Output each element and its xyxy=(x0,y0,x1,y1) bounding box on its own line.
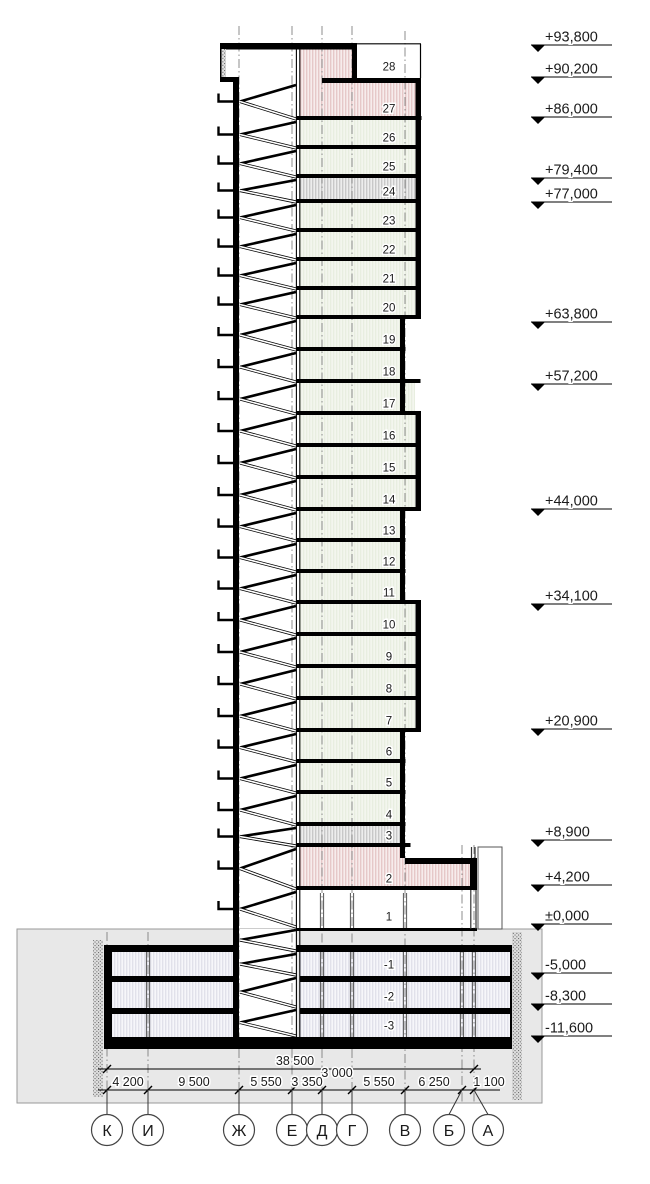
elevation-label: +93,800 xyxy=(545,30,598,46)
elevation-marker xyxy=(531,509,545,516)
balcony-bracket xyxy=(219,612,234,620)
dim-label-segment: 5 550 xyxy=(363,1075,394,1089)
section-drawing: 2827262524232221201918171615141312111098… xyxy=(0,0,650,1184)
stair-flight-upper xyxy=(240,85,296,102)
parapet-step xyxy=(220,77,239,82)
stair-flight-lower-gap xyxy=(240,367,296,382)
parapet-outer-line xyxy=(220,43,222,80)
floor-slab xyxy=(296,199,421,203)
floor-label-3: 3 xyxy=(386,831,392,843)
floor-label-16: 16 xyxy=(383,431,396,443)
floor-slab xyxy=(296,886,477,890)
floor-label-15: 15 xyxy=(383,463,396,475)
dim-label-segment: 9 500 xyxy=(178,1075,209,1089)
side-structure xyxy=(478,847,502,929)
floor-slab xyxy=(296,347,406,351)
parapet-hatch xyxy=(222,49,227,77)
stair-flight-upper xyxy=(240,449,296,463)
attic-void-fill xyxy=(300,49,352,83)
floor-label-24: 24 xyxy=(383,187,396,199)
basement-top-slab xyxy=(296,945,517,952)
floor-label-2: 2 xyxy=(386,874,392,886)
floor-slab xyxy=(296,822,406,826)
annex-right-wall xyxy=(470,858,477,890)
floor-slab xyxy=(296,696,421,700)
basement-left-wall xyxy=(104,945,112,1049)
stair-flight-lower-gap xyxy=(240,527,296,542)
axis-bubble-label: К xyxy=(102,1123,112,1140)
floor-label-11: 11 xyxy=(383,588,395,600)
basement-slab xyxy=(300,1008,510,1014)
floor-slab xyxy=(296,632,421,636)
floor-label-23: 23 xyxy=(383,216,396,228)
balcony-bracket xyxy=(219,455,234,463)
floor-fill xyxy=(300,700,415,732)
floor-label-17: 17 xyxy=(383,399,396,411)
stair-flight-lower-gap xyxy=(240,305,296,319)
basement-top-slab xyxy=(104,945,239,952)
stair-flight-upper xyxy=(240,353,296,367)
elevation-label: +79,400 xyxy=(545,163,598,179)
floor-slab xyxy=(296,728,421,732)
floor-slab xyxy=(296,843,411,847)
floor-label-14: 14 xyxy=(383,495,396,507)
elevation-marker xyxy=(531,77,545,84)
stair-flight-lower-gap xyxy=(240,463,296,478)
floor-slab xyxy=(296,790,406,794)
floor-label--2: -2 xyxy=(384,992,394,1004)
stair-flight-upper xyxy=(240,205,296,218)
stair-flight-upper xyxy=(240,849,296,869)
section-canvas: 2827262524232221201918171615141312111098… xyxy=(0,0,650,1184)
floor-slab xyxy=(296,315,421,319)
dim-label-segment: 3 350 xyxy=(291,1075,322,1089)
axis-bubble-label: И xyxy=(142,1123,154,1140)
floor-label-12: 12 xyxy=(383,557,396,569)
stair-flight-upper xyxy=(240,417,296,431)
floor-fill xyxy=(300,261,415,290)
balcony-bracket xyxy=(219,297,234,305)
right-wall-upper xyxy=(416,83,422,319)
floor-fill xyxy=(300,479,415,511)
floor-slab xyxy=(296,475,421,479)
annex-roof-slab xyxy=(405,858,477,864)
floor-slab xyxy=(296,116,422,120)
floor-label-7: 7 xyxy=(386,716,392,728)
floor-label-8: 8 xyxy=(386,684,392,696)
stair-flight-upper xyxy=(240,702,296,716)
elevation-label: +77,000 xyxy=(545,187,598,203)
elevation-marker xyxy=(531,384,545,391)
floor-fill xyxy=(300,604,415,636)
floor-slab xyxy=(296,443,421,447)
balcony-bracket xyxy=(219,183,234,191)
floor-label-26: 26 xyxy=(383,133,396,145)
stair-flight-upper xyxy=(240,385,296,399)
elevation-label: -8,300 xyxy=(545,989,586,1005)
balcony-bracket xyxy=(219,802,234,810)
stair-flight-lower-gap xyxy=(240,431,296,446)
floor-fill xyxy=(300,447,415,479)
balcony-bracket xyxy=(219,740,234,748)
dim-label-segment: 4 200 xyxy=(112,1075,143,1089)
foundation-slab xyxy=(104,1037,517,1049)
stair-flight-upper xyxy=(240,151,296,164)
dim-label-segment: 1 100 xyxy=(473,1075,504,1089)
floor-slab xyxy=(296,257,421,261)
basement-floor-fill xyxy=(112,952,233,976)
floor-label-21: 21 xyxy=(383,274,396,286)
balcony-bracket xyxy=(219,829,234,837)
roof-slab xyxy=(220,43,357,50)
axis-bubble-label: Е xyxy=(287,1123,298,1140)
floor-slab xyxy=(296,174,421,178)
stair-flight-upper xyxy=(240,828,296,837)
retaining-wall-left xyxy=(93,940,103,1097)
elevation-marker xyxy=(531,840,545,847)
right-wall-19-18 xyxy=(400,319,405,415)
balcony-bracket xyxy=(219,519,234,527)
balcony-bracket xyxy=(219,644,234,652)
elevation-label: ±0,000 xyxy=(545,909,589,925)
floor-fill xyxy=(300,290,415,319)
stair-flight-upper xyxy=(240,892,296,909)
floor-label-1: 1 xyxy=(386,912,392,924)
basement-floor-fill xyxy=(112,1014,233,1037)
dim-label-segment: 6 250 xyxy=(418,1075,449,1089)
balcony-bracket xyxy=(219,391,234,399)
balcony-bracket xyxy=(219,127,234,135)
slab-under-28 xyxy=(322,78,421,83)
axis-bubble-label: В xyxy=(400,1123,411,1140)
floor-label-20: 20 xyxy=(383,303,396,315)
elevation-marker xyxy=(531,604,545,611)
balcony-bracket xyxy=(219,210,234,218)
floor-label-27: 27 xyxy=(383,104,396,116)
stair-flight-lower-gap xyxy=(240,399,296,414)
balcony-bracket xyxy=(219,239,234,247)
balcony-bracket xyxy=(219,268,234,276)
floor-label-22: 22 xyxy=(383,245,396,257)
balcony-bracket xyxy=(219,327,234,335)
floor-slab xyxy=(296,145,421,149)
stair-flight-lower-gap xyxy=(240,779,296,794)
elevation-label: +90,200 xyxy=(545,62,598,78)
elevation-marker xyxy=(531,729,545,736)
stair-flight-lower-gap xyxy=(240,684,296,699)
elevation-label: +20,900 xyxy=(545,714,598,730)
stair-flight-lower-gap xyxy=(240,335,296,350)
floor-fill xyxy=(300,120,415,149)
stair-flight-upper xyxy=(240,638,296,652)
stair-flight-upper xyxy=(240,765,296,779)
stair-flight-upper xyxy=(240,575,296,589)
right-wall-10-7 xyxy=(416,600,422,732)
stair-flight-upper xyxy=(240,481,296,495)
right-wall-17-14 xyxy=(416,411,422,511)
floor-slab xyxy=(296,286,421,290)
balcony-bracket xyxy=(219,708,234,716)
stair-flight-lower-gap xyxy=(240,869,296,890)
balcony-bracket xyxy=(219,901,234,909)
elevation-marker xyxy=(531,885,545,892)
floor-label-10: 10 xyxy=(383,620,396,632)
stair-flight-upper xyxy=(240,122,296,135)
balcony-bracket xyxy=(219,550,234,558)
elevation-label: +57,200 xyxy=(545,369,598,385)
floor-fill xyxy=(300,636,415,668)
floor-fill xyxy=(300,383,415,415)
axis-bubble-label: Г xyxy=(348,1123,357,1140)
dim-label-inset: 3 000 xyxy=(321,1066,352,1080)
balcony-bracket xyxy=(219,676,234,684)
floor-slab xyxy=(296,228,421,232)
stair-flight-lower-gap xyxy=(240,558,296,573)
elevation-marker xyxy=(531,202,545,209)
wall-floor28-left xyxy=(352,45,357,78)
annex-fill xyxy=(405,864,470,888)
elevation-label: +86,000 xyxy=(545,102,598,118)
stair-flight-lower-gap xyxy=(240,218,296,232)
stair-flight-lower-gap xyxy=(240,810,296,825)
right-wall-13-11 xyxy=(400,511,405,604)
floor-label-25: 25 xyxy=(383,162,396,174)
basement-slab xyxy=(300,976,510,982)
retaining-wall-right xyxy=(512,932,522,1100)
stair-flight-upper xyxy=(240,180,296,191)
stair-flight-upper xyxy=(240,263,296,276)
stair-flight-upper xyxy=(240,796,296,810)
axis-bubble-label: А xyxy=(483,1123,494,1140)
balcony-bracket xyxy=(219,423,234,431)
dim-label-overall: 38 500 xyxy=(276,1054,314,1068)
stair-flight-lower-gap xyxy=(240,247,296,261)
elevation-label: +4,200 xyxy=(545,870,590,886)
stair-flight-upper xyxy=(240,544,296,558)
stair-flight-upper xyxy=(240,234,296,247)
floor-fill xyxy=(300,149,415,178)
floor-label-6: 6 xyxy=(386,747,392,759)
floor-slab xyxy=(296,759,406,763)
balcony-bracket xyxy=(219,487,234,495)
basement-floor-fill xyxy=(112,982,233,1008)
stair-flight-upper xyxy=(240,513,296,527)
elevation-marker xyxy=(531,178,545,185)
dim-label-segment: 5 550 xyxy=(250,1075,281,1089)
left-wall xyxy=(233,77,239,1037)
floor-label-13: 13 xyxy=(383,526,396,538)
floor-fill xyxy=(300,232,415,261)
floor-fill xyxy=(300,415,415,447)
elevation-label: -11,600 xyxy=(545,1021,593,1037)
stair-flight-lower-gap xyxy=(240,620,296,635)
elevation-label: -5,000 xyxy=(545,958,586,974)
floor-label-5: 5 xyxy=(386,778,392,790)
axis-bubble-label: Д xyxy=(317,1123,328,1140)
floor-fill xyxy=(300,83,416,120)
elevation-label: +44,000 xyxy=(545,494,598,510)
floor-slab xyxy=(296,569,406,573)
stair-flight-lower-gap xyxy=(240,191,296,203)
balcony-bracket xyxy=(219,771,234,779)
stair-flight-lower-gap xyxy=(240,135,296,149)
balcony-bracket xyxy=(219,359,234,367)
elevation-label: +8,900 xyxy=(545,825,590,841)
floor-label-28: 28 xyxy=(383,62,396,74)
floor-slab xyxy=(296,538,406,542)
stair-flight-lower-gap xyxy=(240,495,296,510)
stair-flight-lower-gap xyxy=(240,164,296,178)
stair-flight-upper xyxy=(240,670,296,684)
floor-label-19: 19 xyxy=(383,335,396,347)
floor-fill xyxy=(300,668,415,700)
stair-flight-lower-gap xyxy=(240,909,296,927)
floor-label--3: -3 xyxy=(384,1021,394,1033)
axis-bubble-label: Б xyxy=(444,1123,455,1140)
elevation-marker xyxy=(531,322,545,329)
floor-label-4: 4 xyxy=(386,810,393,822)
floor-slab xyxy=(296,507,421,511)
stair-flight-upper xyxy=(240,292,296,305)
elevation-marker xyxy=(531,45,545,52)
floor-label--1: -1 xyxy=(384,960,394,972)
floor-label-9: 9 xyxy=(386,652,392,664)
right-wall-lower xyxy=(400,732,405,858)
ground-floor-slab xyxy=(296,928,477,931)
floor-label-18: 18 xyxy=(383,367,396,379)
floor-fill xyxy=(300,203,415,232)
stair-flight-upper xyxy=(240,734,296,748)
stair-flight-lower-gap xyxy=(240,837,296,847)
basement-slab xyxy=(112,976,233,982)
balcony-bracket xyxy=(219,94,234,102)
stair-flight-lower-gap xyxy=(240,589,296,604)
stair-flight-lower-gap xyxy=(240,716,296,731)
balcony-bracket xyxy=(219,581,234,589)
stair-flight-lower-gap xyxy=(240,102,296,120)
elevation-label: +63,800 xyxy=(545,307,598,323)
balcony-bracket xyxy=(219,156,234,164)
stair-flight-upper xyxy=(240,321,296,335)
stair-flight-lower-gap xyxy=(240,652,296,667)
stair-flight-lower-gap xyxy=(240,748,296,763)
basement-slab xyxy=(112,1008,233,1014)
elevation-label: +34,100 xyxy=(545,589,598,605)
stair-flight-upper xyxy=(240,606,296,620)
stair-flight-lower-gap xyxy=(240,276,296,290)
floor-slab xyxy=(296,664,421,668)
balcony-bracket xyxy=(219,861,234,869)
axis-bubble-label: Ж xyxy=(232,1123,247,1140)
elevation-marker xyxy=(531,117,545,124)
